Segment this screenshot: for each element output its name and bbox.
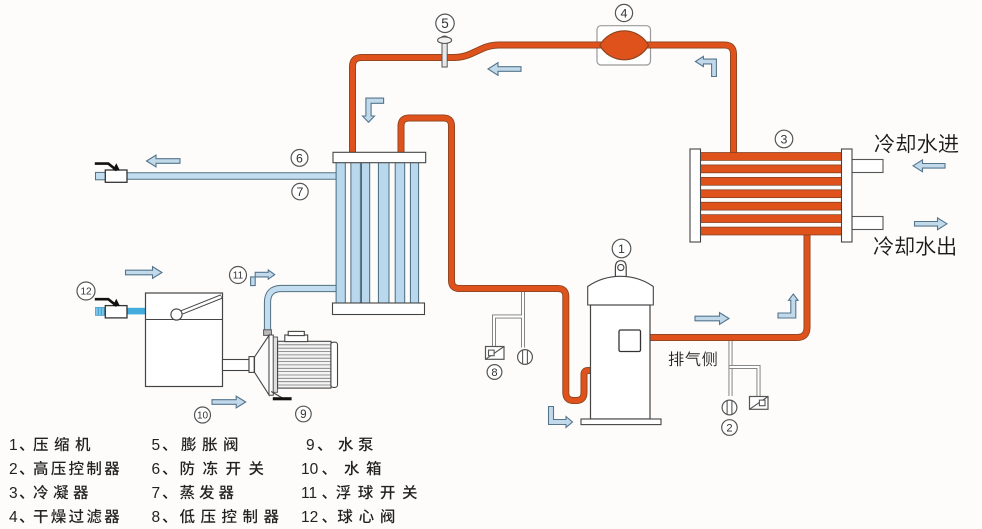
svg-text:7: 7 bbox=[152, 485, 161, 502]
svg-text:4: 4 bbox=[621, 7, 628, 21]
svg-text:6: 6 bbox=[152, 461, 161, 478]
svg-text:6: 6 bbox=[296, 151, 303, 165]
svg-text:10: 10 bbox=[301, 461, 319, 478]
svg-text:8: 8 bbox=[152, 509, 161, 526]
svg-text:7: 7 bbox=[297, 185, 304, 199]
svg-text:3: 3 bbox=[781, 133, 788, 147]
svg-text:11: 11 bbox=[301, 485, 317, 502]
svg-text:12: 12 bbox=[80, 287, 92, 298]
svg-text:11: 11 bbox=[233, 271, 244, 282]
svg-text:5: 5 bbox=[441, 16, 449, 31]
svg-text:1: 1 bbox=[9, 437, 18, 454]
svg-text:9: 9 bbox=[300, 408, 306, 421]
svg-text:8: 8 bbox=[491, 367, 497, 379]
svg-text:5: 5 bbox=[152, 437, 161, 454]
svg-text:3: 3 bbox=[9, 485, 18, 502]
svg-text:2: 2 bbox=[9, 461, 18, 478]
svg-text:10: 10 bbox=[197, 411, 209, 422]
svg-text:2: 2 bbox=[726, 423, 732, 435]
svg-text:4: 4 bbox=[9, 509, 18, 526]
svg-text:12: 12 bbox=[301, 509, 318, 526]
svg-text:1: 1 bbox=[618, 242, 625, 256]
svg-text:9: 9 bbox=[306, 437, 315, 454]
